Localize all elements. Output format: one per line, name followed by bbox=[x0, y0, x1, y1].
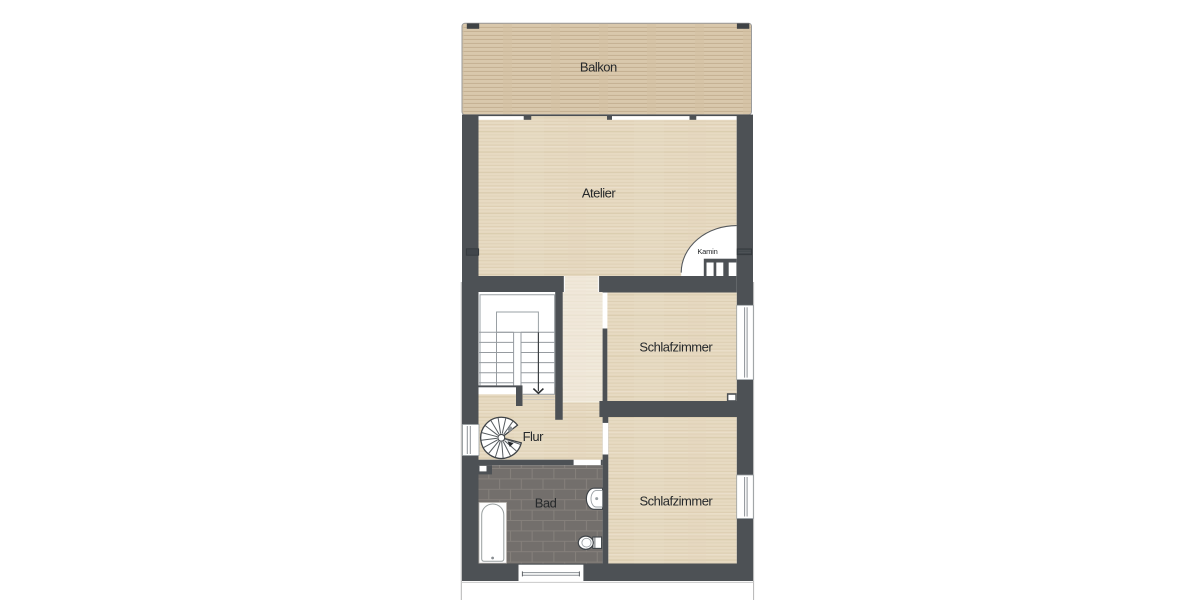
svg-text:Kamin: Kamin bbox=[697, 247, 717, 256]
svg-text:Flur: Flur bbox=[523, 429, 545, 444]
svg-text:Balkon: Balkon bbox=[580, 60, 617, 75]
svg-text:Bad: Bad bbox=[535, 496, 557, 511]
svg-text:Atelier: Atelier bbox=[582, 186, 617, 201]
svg-text:Schlafzimmer: Schlafzimmer bbox=[639, 340, 713, 355]
svg-text:Schlafzimmer: Schlafzimmer bbox=[640, 494, 714, 509]
